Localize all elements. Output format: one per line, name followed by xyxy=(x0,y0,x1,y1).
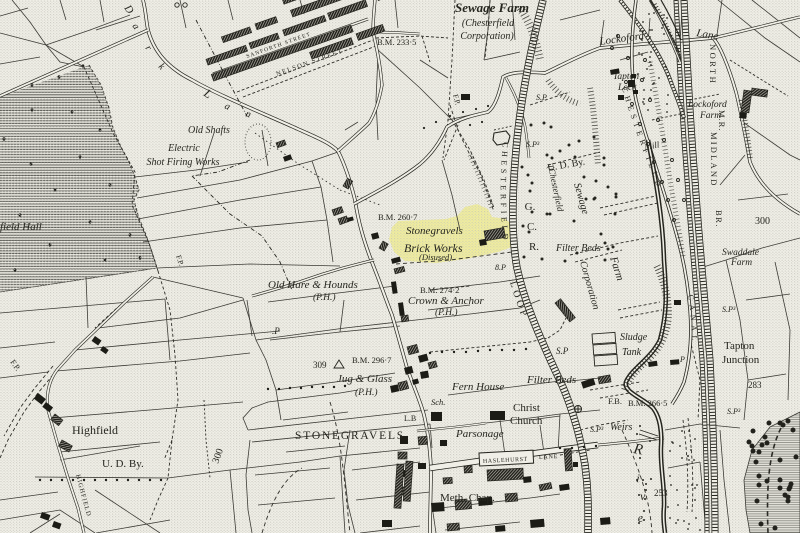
svg-text:Sludge: Sludge xyxy=(620,332,648,343)
svg-text:300: 300 xyxy=(755,216,770,227)
svg-text:Sewage Farm: Sewage Farm xyxy=(455,0,529,15)
svg-text:Jug & Glass: Jug & Glass xyxy=(337,373,392,385)
svg-text:S.P³: S.P³ xyxy=(727,407,741,416)
svg-text:G.: G. xyxy=(525,201,536,213)
svg-text:Filter Beds: Filter Beds xyxy=(555,243,601,254)
svg-text:S.P³: S.P³ xyxy=(526,140,540,149)
svg-text:B.M. 274·2: B.M. 274·2 xyxy=(420,285,459,295)
svg-text:(Disused): (Disused) xyxy=(419,252,452,262)
svg-text:P: P xyxy=(679,355,685,364)
svg-text:C.: C. xyxy=(527,221,537,233)
svg-text:B.M. 260·7: B.M. 260·7 xyxy=(378,212,417,222)
svg-text:Lockoford: Lockoford xyxy=(687,99,727,110)
svg-text:MIDLAND: MIDLAND xyxy=(709,132,719,188)
svg-text:Stonegravels: Stonegravels xyxy=(406,225,463,237)
svg-text:S.P³: S.P³ xyxy=(722,305,736,314)
svg-text:Meth. Chap.: Meth. Chap. xyxy=(440,492,495,504)
svg-text:field Hall: field Hall xyxy=(0,221,42,233)
svg-text:(P.H.): (P.H.) xyxy=(355,387,378,398)
svg-text:(Chesterfield: (Chesterfield xyxy=(462,18,515,29)
svg-text:Old Shafts: Old Shafts xyxy=(188,125,230,136)
svg-text:Electric: Electric xyxy=(167,143,200,154)
svg-text:STONEGRAVELS: STONEGRAVELS xyxy=(295,430,405,442)
svg-text:Swaddale: Swaddale xyxy=(722,248,759,258)
svg-text:F.B.: F.B. xyxy=(608,396,622,406)
svg-text:R.: R. xyxy=(529,241,539,253)
svg-text:v: v xyxy=(640,489,646,503)
svg-text:BR.: BR. xyxy=(714,210,724,228)
svg-text:Church: Church xyxy=(510,415,543,427)
svg-text:Sch.: Sch. xyxy=(431,397,445,407)
svg-text:Farm: Farm xyxy=(730,258,752,268)
svg-text:Filter Beds: Filter Beds xyxy=(526,374,576,386)
svg-text:283: 283 xyxy=(748,380,762,390)
svg-text:L.B: L.B xyxy=(404,414,416,423)
svg-text:B.M. 296·7: B.M. 296·7 xyxy=(352,355,391,365)
svg-text:Highfield: Highfield xyxy=(72,423,118,437)
svg-text:Shot Firing Works: Shot Firing Works xyxy=(147,157,220,168)
svg-text:Tapton: Tapton xyxy=(613,72,639,82)
svg-text:Parsonage: Parsonage xyxy=(455,428,504,440)
svg-text:M.R.: M.R. xyxy=(717,110,727,131)
svg-text:LANE: LANE xyxy=(539,454,558,461)
svg-text:253: 253 xyxy=(654,488,668,498)
svg-text:Christ: Christ xyxy=(513,402,540,414)
svg-text:Tank: Tank xyxy=(622,347,642,358)
svg-text:8.P: 8.P xyxy=(495,263,506,272)
svg-text:Weirs: Weirs xyxy=(610,422,633,433)
svg-text:Junction: Junction xyxy=(722,354,760,366)
svg-text:S.P: S.P xyxy=(556,346,569,356)
svg-text:B.M. 233·5: B.M. 233·5 xyxy=(377,37,416,47)
svg-text:U. D. By.: U. D. By. xyxy=(102,458,144,470)
svg-text:S.P³: S.P³ xyxy=(590,425,604,434)
svg-text:NORTH: NORTH xyxy=(708,44,718,85)
svg-text:S.P: S.P xyxy=(536,93,547,102)
svg-text:B.M. 266·5: B.M. 266·5 xyxy=(628,398,667,408)
svg-text:(P.H.): (P.H.) xyxy=(435,307,458,318)
svg-text:Fern House: Fern House xyxy=(451,381,504,393)
svg-text:Corporation): Corporation) xyxy=(460,31,514,42)
svg-text:Crown & Anchor: Crown & Anchor xyxy=(408,295,485,307)
svg-text:Tapton: Tapton xyxy=(724,340,755,352)
svg-text:(P.H.): (P.H.) xyxy=(313,292,336,303)
svg-text:Old Hare & Hounds: Old Hare & Hounds xyxy=(268,279,358,291)
svg-text:309: 309 xyxy=(313,360,327,370)
svg-text:.P: .P xyxy=(272,326,280,336)
